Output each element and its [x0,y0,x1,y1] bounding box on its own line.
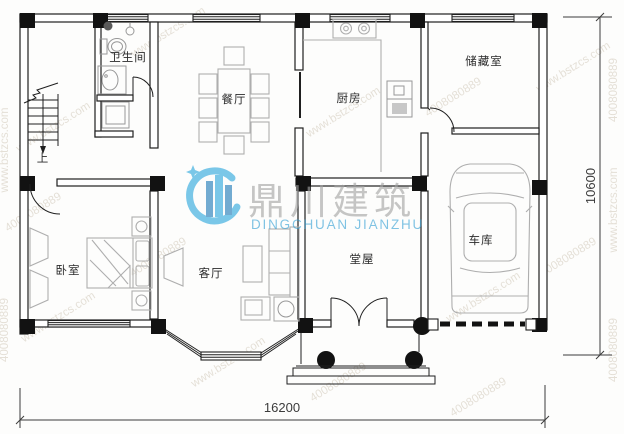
living-furniture [241,227,299,321]
brand-logo: 鼎川建筑 DINGCHUAN JIANZHU [186,165,424,232]
window [330,15,390,22]
nightstand-icon [132,291,151,310]
room-label-dining: 餐厅 [222,92,247,106]
wardrobe-icon [30,228,48,308]
armchair-icon [241,297,270,320]
dimension-width-label: 16200 [264,400,300,415]
washing-machine-icon [102,102,129,128]
sink-icon [98,66,126,94]
watermark-text: www.bstzcs.com [188,335,267,391]
watermark-text: www.bstzcs.com [608,168,620,254]
watermark-text: 4008080889 [448,375,509,419]
watermark-text: 4008080889 [608,318,620,382]
tv-cabinet-icon [243,246,262,282]
room-label-living: 客厅 [199,266,224,280]
garage-door [428,319,536,330]
room-labels: 卫生间 餐厅 厨房 储藏室 卧室 客厅 堂屋 车库 [56,50,503,280]
floor-plan-drawing: www.bstzcs.com www.bstzcs.com 4008080889… [0,0,624,434]
window [103,15,148,22]
room-label-hall: 堂屋 [350,253,375,266]
watermark-text: www.bstzcs.com [443,270,522,326]
bay-window [163,328,300,360]
sofa-icon [269,227,299,297]
watermark-text: 4008080889 [423,75,484,119]
stairs-icon: 上 [24,83,58,165]
drain-icon [104,22,113,31]
room-label-bedroom: 卧室 [56,263,81,277]
room-label-garage: 车库 [469,233,494,247]
watermark-text: 4008080889 [608,58,620,122]
room-label-storage: 储藏室 [465,54,503,68]
dimension-height-label: 10600 [583,168,598,204]
logo-text-en: DINGCHUAN JIANZHU [251,217,424,232]
watermark-text: 4008080889 [0,298,11,362]
entry-double-door-icon [331,298,387,326]
stairs-up-label: 上 [37,152,50,165]
watermark-text: www.bstzcs.com [0,108,11,194]
room-label-kitchen: 厨房 [337,92,362,105]
building-logo-icon [186,165,237,221]
ceiling-light-icon [126,23,134,35]
logo-text-cn: 鼎川建筑 [248,181,416,222]
floor-plan-canvas: www.bstzcs.com www.bstzcs.com 4008080889… [0,0,624,434]
window [193,15,260,22]
window [452,15,514,22]
bathroom-fixtures [98,22,134,129]
window [48,321,130,328]
nightstand-icon [132,217,151,236]
watermark-text: 4008080889 [308,360,369,404]
fridge-icon [387,81,412,117]
room-label-bathroom: 卫生间 [109,50,147,64]
plant-icon [274,297,299,321]
